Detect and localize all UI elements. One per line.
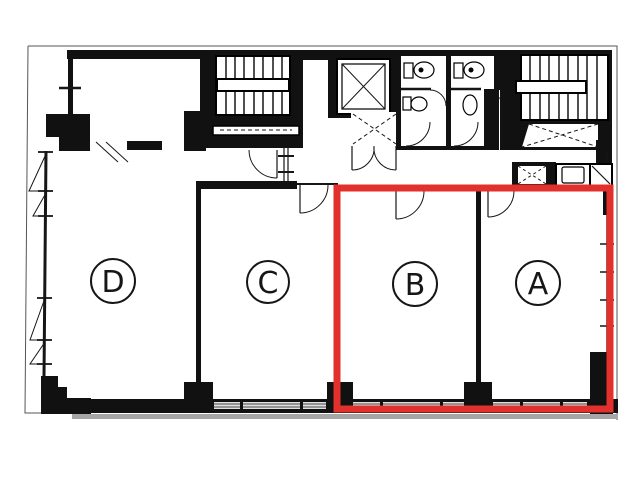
wall-c-d (196, 181, 201, 385)
corridor-partition (278, 147, 294, 183)
stair-landing (217, 79, 289, 91)
room-c: C (196, 181, 338, 385)
door-swing-arc (249, 150, 277, 178)
highlight-rectangle-rooms-a-b (337, 188, 610, 409)
room-b: B (393, 191, 481, 386)
room-label-c: C (258, 266, 279, 301)
room-label-b: B (405, 268, 426, 303)
room-d: D (29, 151, 135, 414)
elevator-hall-dashed-x-icon (351, 112, 398, 170)
elevator-icon (328, 50, 396, 118)
pillar (184, 382, 213, 413)
room-label-a: A (528, 267, 549, 302)
floor-plan-image: D C B A (0, 0, 640, 480)
door-swing-arc (374, 146, 396, 170)
room-label-d: D (101, 265, 124, 300)
staircase-right-icon (500, 50, 612, 150)
room-a: A (488, 185, 614, 414)
door-swing-arc (488, 191, 514, 217)
door-swing-arc (352, 146, 374, 170)
bottom-shadow (72, 414, 618, 419)
door-swing-arc (300, 185, 328, 213)
floor-plan-drawing: D C B A (0, 0, 640, 480)
stair-landing (516, 81, 586, 93)
door-swing-arc (396, 191, 424, 219)
wall-b-a (476, 191, 481, 386)
